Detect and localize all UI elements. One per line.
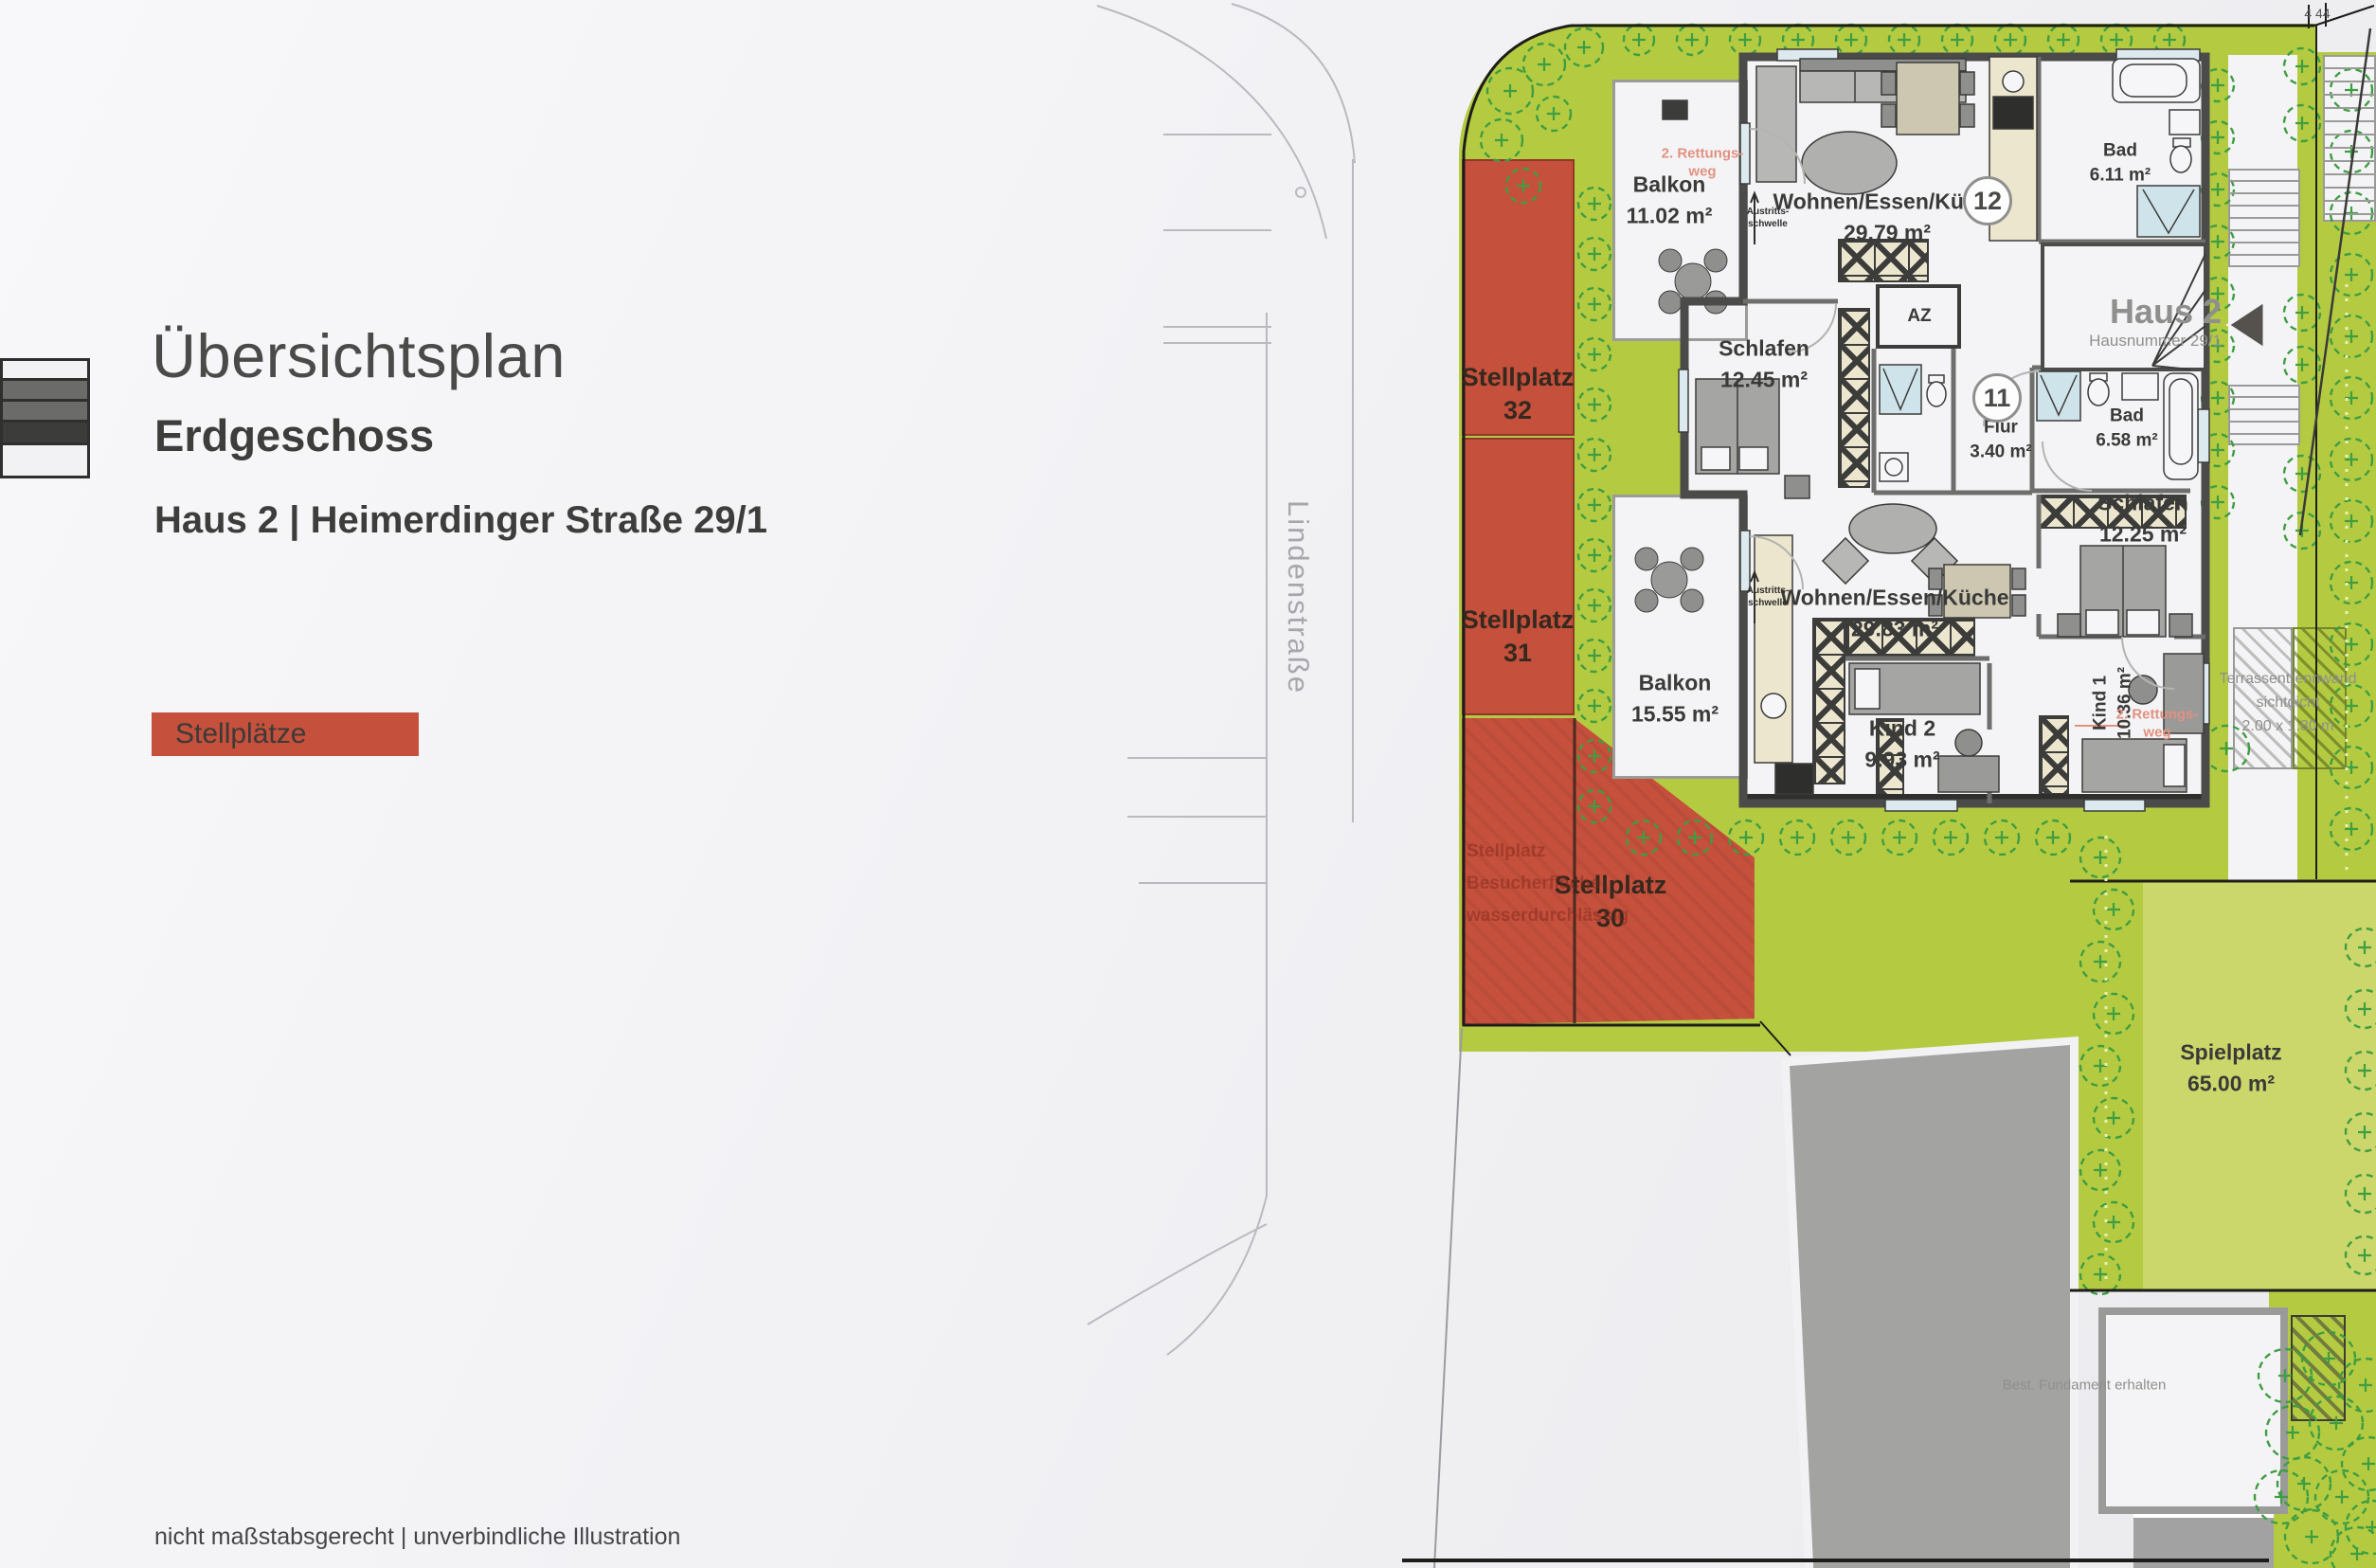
room-area: 12.25 m² bbox=[2097, 519, 2188, 550]
bathroom-sink bbox=[2122, 373, 2158, 400]
nightstand bbox=[2058, 614, 2080, 637]
survey-mark: 4 44 bbox=[2304, 6, 2330, 21]
bush-cross bbox=[1588, 599, 1601, 612]
note-line: Austritts- bbox=[1747, 206, 1789, 218]
patio-chair-icon bbox=[1681, 589, 1703, 612]
room-name: Bad bbox=[2096, 404, 2157, 428]
bush-cross bbox=[2110, 33, 2123, 46]
patio-chair-icon bbox=[1704, 249, 1727, 272]
bush-cross bbox=[1588, 247, 1601, 261]
room-label-bad-12: Bad 6.11 m² bbox=[2090, 138, 2151, 187]
room-label-balkon-11: Balkon 15.55 m² bbox=[1631, 668, 1719, 731]
parking-note: Stellplatz Besucherfläche wasserdurchläs… bbox=[1467, 836, 1629, 933]
desk-chair bbox=[1955, 730, 1982, 756]
bush-cross bbox=[2057, 33, 2070, 46]
bush-cross bbox=[1637, 831, 1650, 844]
balcony-post bbox=[1663, 100, 1687, 119]
patio-table-icon bbox=[1651, 562, 1687, 598]
bush-cross bbox=[2211, 391, 2224, 405]
sofa-chaise bbox=[1756, 66, 1796, 182]
bush-cross bbox=[1588, 749, 1601, 763]
bush-cross bbox=[2330, 1416, 2343, 1430]
bush-cross bbox=[2359, 1379, 2372, 1392]
bush-cross bbox=[1588, 348, 1601, 361]
room-name: Balkon bbox=[1631, 668, 1719, 699]
room-label-kind-2: Kind 2 9.93 m² bbox=[1864, 713, 1939, 777]
site-plan-page: { "header": { "title": "Übersichtsplan",… bbox=[0, 0, 2376, 1568]
note-line: 2. Rettungs- bbox=[2116, 706, 2199, 724]
wc bbox=[2088, 379, 2109, 406]
note-line: schwelle bbox=[1747, 597, 1789, 609]
bush-cross bbox=[2211, 131, 2224, 144]
nightstand bbox=[1785, 476, 1809, 498]
bush-cross bbox=[1944, 831, 1957, 844]
bush-cross bbox=[1588, 649, 1601, 662]
bush-cross bbox=[1893, 831, 1906, 844]
bush-cross bbox=[2358, 941, 2371, 954]
pillow bbox=[1855, 669, 1880, 709]
bush-cross bbox=[2358, 1126, 2371, 1139]
bush-cross bbox=[1588, 398, 1601, 411]
desk bbox=[1938, 756, 1999, 792]
window bbox=[2084, 800, 2145, 811]
bush-cross bbox=[2350, 1547, 2364, 1560]
window bbox=[2198, 409, 2209, 462]
bush-cross bbox=[2345, 514, 2358, 528]
foundation-note: Best. Fundament erhalten bbox=[2003, 1378, 2167, 1394]
plan-linework bbox=[0, 0, 2376, 1568]
terrace-divider-note: Terrassentrennwand sichtdicht 2.00 x 1.8… bbox=[2220, 668, 2357, 738]
bush-cross bbox=[2107, 1216, 2120, 1229]
parking-note-line: wasserdurchlässig bbox=[1467, 900, 1629, 932]
parking-number: 32 bbox=[1462, 394, 1575, 427]
rug bbox=[1802, 132, 1897, 194]
parking-word: Stellplatz bbox=[1462, 361, 1575, 394]
unit-badge-11[interactable]: 11 bbox=[1972, 373, 2022, 423]
chair bbox=[1881, 104, 1896, 127]
street-corner-arc bbox=[1232, 4, 1355, 163]
room-area: 3.40 m² bbox=[1970, 440, 2031, 464]
bush-cross bbox=[2322, 1352, 2335, 1365]
room-name: Kind 1 bbox=[2088, 667, 2113, 739]
shower bbox=[2137, 186, 2200, 237]
bush-cross bbox=[1791, 831, 1804, 844]
patio-chair-icon bbox=[1635, 589, 1658, 612]
chair bbox=[1960, 104, 1974, 127]
chair bbox=[2012, 568, 2025, 589]
room-area: 6.58 m² bbox=[2096, 428, 2157, 453]
chair bbox=[1960, 72, 1974, 95]
bush-cross bbox=[2107, 1111, 2120, 1125]
room-label-az: AZ bbox=[1907, 304, 1931, 329]
bush-cross bbox=[2345, 268, 2358, 281]
bush-cross bbox=[2358, 1249, 2371, 1262]
bush-cross bbox=[2345, 330, 2358, 343]
playground-area: 65.00 m² bbox=[2180, 1069, 2281, 1100]
room-name: AZ bbox=[1907, 304, 1931, 329]
bush-cross bbox=[1577, 41, 1591, 54]
room-label-schlafen-1245: Schlafen 12.45 m² bbox=[1719, 333, 1809, 397]
house-label: Haus 2 bbox=[2065, 292, 2222, 332]
note-line: weg bbox=[1662, 163, 1744, 181]
escape-route-note: 2. Rettungs- weg bbox=[2116, 706, 2199, 742]
bush-cross bbox=[2211, 183, 2224, 196]
bush-cross bbox=[2335, 1490, 2349, 1504]
room-label-flur: Flur 3.40 m² bbox=[1970, 415, 2031, 463]
divider-line: Terrassentrennwand bbox=[2220, 668, 2357, 692]
room-area: 9.93 m² bbox=[1864, 745, 1939, 776]
room-area: 15.55 m² bbox=[1631, 699, 1719, 730]
wc bbox=[1927, 382, 1946, 406]
chair bbox=[2012, 595, 2025, 616]
bush-cross bbox=[1588, 800, 1601, 813]
pillow bbox=[2164, 745, 2185, 786]
pillow bbox=[1739, 447, 1768, 470]
bush-cross bbox=[2295, 117, 2309, 130]
bush-cross bbox=[1588, 699, 1601, 712]
room-name: Kind 2 bbox=[1864, 713, 1939, 745]
bush-cross bbox=[1845, 33, 1858, 46]
chair bbox=[1881, 72, 1896, 95]
bush-cross bbox=[2094, 1163, 2107, 1177]
divider-line: sichtdicht bbox=[2220, 692, 2357, 715]
bush-cross bbox=[1898, 33, 1911, 46]
bush-cross bbox=[2046, 831, 2060, 844]
bush-cross bbox=[2295, 60, 2309, 73]
patio-chair-icon bbox=[1681, 548, 1703, 570]
bathroom-sink bbox=[2169, 110, 2200, 135]
dryer bbox=[1880, 453, 1908, 481]
bush-cross bbox=[2286, 1426, 2299, 1439]
bush-cross bbox=[1951, 33, 1964, 46]
bush-cross bbox=[1688, 831, 1701, 844]
door-arc bbox=[2043, 442, 2092, 491]
room-area: 12.45 m² bbox=[1719, 365, 1809, 396]
bush-cross bbox=[1791, 33, 1805, 46]
pillow bbox=[1701, 447, 1730, 470]
bush-cross bbox=[2295, 467, 2309, 480]
room-name: Schlafen bbox=[2097, 488, 2188, 519]
parcel-line bbox=[1760, 1021, 1791, 1055]
bush-cross bbox=[2211, 443, 2224, 457]
stove bbox=[1775, 764, 1813, 794]
bush-cross bbox=[2278, 1369, 2292, 1382]
bush-cross bbox=[1588, 297, 1601, 311]
bush-cross bbox=[2211, 496, 2224, 509]
divider-line: 2.00 x 1.80 m bbox=[2220, 714, 2357, 738]
window bbox=[1885, 800, 1957, 811]
bush-cross bbox=[1588, 498, 1601, 512]
note-line: schwelle bbox=[1747, 218, 1789, 230]
bush-cross bbox=[2211, 235, 2224, 248]
bush-cross bbox=[2295, 306, 2309, 319]
street-lines bbox=[1088, 4, 1355, 1355]
wc bbox=[2170, 146, 2191, 172]
bush-cross bbox=[2107, 1007, 2120, 1020]
street-corner-arc bbox=[1097, 6, 1326, 239]
room-area: 29.79 m² bbox=[1773, 218, 2001, 249]
street-curb bbox=[1167, 313, 1267, 1355]
parking-number: 31 bbox=[1462, 637, 1575, 670]
parking-label-32: Stellplatz 32 bbox=[1462, 361, 1575, 427]
playground-name: Spielplatz bbox=[2180, 1037, 2281, 1069]
patio-chair-icon bbox=[1635, 548, 1658, 570]
note-line: 2. Rettungs- bbox=[1662, 145, 1744, 163]
dining-table bbox=[1897, 63, 1959, 135]
playground-label: Spielplatz 65.00 m² bbox=[2180, 1037, 2281, 1101]
bush-cross bbox=[1685, 33, 1699, 46]
pillow bbox=[2127, 610, 2159, 635]
bush-cross bbox=[1632, 33, 1646, 46]
kitchen-counter bbox=[1755, 535, 1792, 763]
parking-note-line: Besucherfläche bbox=[1467, 868, 1629, 900]
room-name: Bad bbox=[2090, 138, 2151, 163]
bush-cross bbox=[2220, 742, 2233, 755]
bush-cross bbox=[2358, 1064, 2371, 1077]
parking-word: Stellplatz bbox=[1462, 604, 1575, 637]
room-label-bad-11: Bad 6.58 m² bbox=[2096, 404, 2157, 452]
shower bbox=[1880, 365, 1921, 414]
parking-label-31: Stellplatz 31 bbox=[1462, 604, 1575, 670]
room-name: Wohnen/Essen/Küche bbox=[1780, 583, 2008, 614]
street-arc-bottom bbox=[1088, 1224, 1267, 1325]
bush-cross bbox=[2358, 1187, 2371, 1200]
bush-cross bbox=[1538, 58, 1551, 71]
rug bbox=[1849, 504, 1936, 553]
bush-cross bbox=[1517, 179, 1530, 192]
bush-cross bbox=[1547, 107, 1560, 120]
note-line: Austritts- bbox=[1747, 585, 1789, 597]
room-name: Schlafen bbox=[1719, 333, 1809, 365]
survey-point bbox=[1296, 188, 1305, 197]
bush-cross bbox=[1738, 33, 1752, 46]
room-area: 29.83 m² bbox=[1780, 614, 2008, 645]
bush-cross bbox=[1503, 84, 1517, 98]
patio-chair-icon bbox=[1659, 291, 1682, 314]
balcony-door bbox=[1740, 531, 1750, 591]
parcel-line bbox=[1434, 1028, 1462, 1568]
nightstand bbox=[2169, 614, 2192, 637]
room-area: 6.11 m² bbox=[2090, 163, 2151, 188]
room-label-schlafen-1225: Schlafen 12.25 m² bbox=[2097, 488, 2188, 551]
bush-cross bbox=[2305, 1530, 2318, 1543]
bush-cross bbox=[1495, 134, 1508, 147]
threshold-note: Austritts- schwelle bbox=[1747, 206, 1789, 230]
escape-route-note: 2. Rettungs- weg bbox=[1662, 145, 1744, 181]
bush-cross bbox=[2362, 1457, 2375, 1470]
bush-cross bbox=[1588, 197, 1601, 210]
bush-cross bbox=[2358, 1002, 2371, 1016]
bush-cross bbox=[1842, 831, 1855, 844]
bush-cross bbox=[2107, 903, 2120, 916]
sink bbox=[2003, 71, 2024, 92]
bush-cross bbox=[2094, 851, 2107, 864]
bush-cross bbox=[2163, 33, 2176, 46]
note-line: weg bbox=[2116, 724, 2199, 742]
window bbox=[1679, 369, 1688, 432]
sink bbox=[1761, 694, 1786, 718]
patio-chair-icon bbox=[1659, 249, 1682, 272]
stove bbox=[1993, 97, 2033, 129]
house-sublabel: Hausnummer 29/1 bbox=[2065, 332, 2222, 351]
room-label-wohnen-11: Wohnen/Essen/Küche 29.83 m² bbox=[1780, 583, 2008, 646]
parcel-ticks bbox=[1127, 135, 1271, 883]
patio-table-icon bbox=[1675, 263, 1711, 299]
house-label-block: Haus 2 Hausnummer 29/1 bbox=[2065, 292, 2222, 351]
bush-cross bbox=[1588, 448, 1601, 461]
unit-badge-12[interactable]: 12 bbox=[1963, 176, 2012, 225]
bush-cross bbox=[2211, 79, 2224, 92]
bush-cross bbox=[1588, 549, 1601, 562]
bush-cross bbox=[2004, 33, 2017, 46]
bush-cross bbox=[1995, 831, 2008, 844]
parking-note-line: Stellplatz bbox=[1467, 836, 1629, 868]
threshold-note: Austritts- schwelle bbox=[1747, 585, 1789, 609]
room-area: 11.02 m² bbox=[1627, 201, 1713, 232]
bush-cross bbox=[2295, 358, 2309, 371]
pillow bbox=[2086, 610, 2118, 635]
bush-cross bbox=[1739, 831, 1753, 844]
